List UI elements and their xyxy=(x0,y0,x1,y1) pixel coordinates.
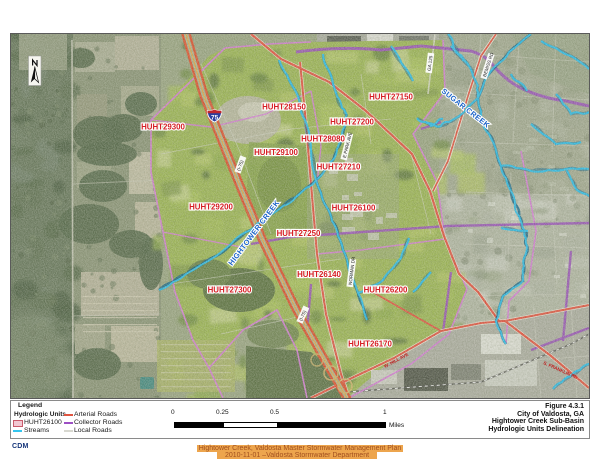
svg-text:HUHT26200: HUHT26200 xyxy=(364,286,408,295)
svg-text:75: 75 xyxy=(211,115,219,122)
svg-text:HUHT29100: HUHT29100 xyxy=(254,148,298,157)
svg-text:HUHT28150: HUHT28150 xyxy=(262,103,306,112)
svg-text:HUHT26170: HUHT26170 xyxy=(348,340,392,349)
svg-text:HUHT27210: HUHT27210 xyxy=(317,163,361,172)
svg-text:HUHT27150: HUHT27150 xyxy=(369,93,413,102)
svg-text:HUHT28080: HUHT28080 xyxy=(301,135,345,144)
svg-text:HUHT26100: HUHT26100 xyxy=(332,204,376,213)
svg-text:HUHT27250: HUHT27250 xyxy=(277,229,321,238)
svg-text:HUHT27200: HUHT27200 xyxy=(330,118,374,127)
svg-text:HUHT26140: HUHT26140 xyxy=(297,270,341,279)
svg-text:HUHT27300: HUHT27300 xyxy=(208,286,252,295)
svg-text:HUHT29200: HUHT29200 xyxy=(189,203,233,212)
svg-text:HUHT29300: HUHT29300 xyxy=(141,123,185,132)
